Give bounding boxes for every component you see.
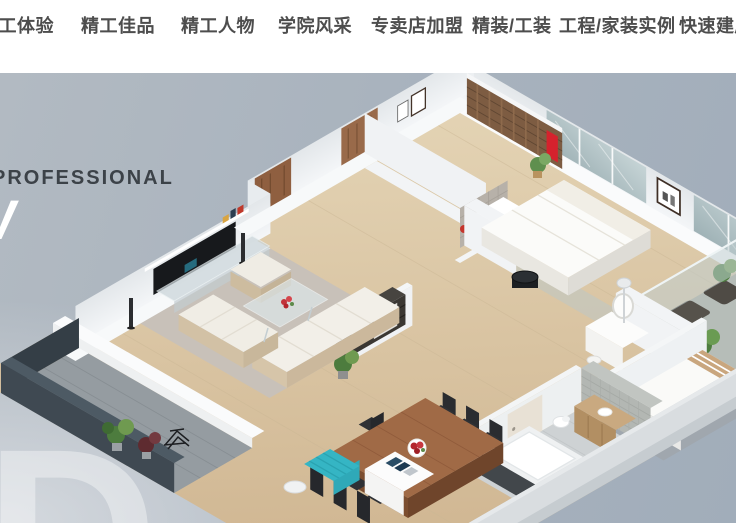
apartment-isometric-render: [0, 73, 736, 523]
nav-item-jingzhuang[interactable]: 精装/工装: [472, 12, 552, 38]
hero-banner: ID PROFESSIONAL W: [0, 73, 736, 523]
nav-item-jinggong-tiyan[interactable]: 精工体验: [0, 12, 54, 38]
fruit-bowl: [408, 439, 426, 457]
nav-item-gongcheng-anli[interactable]: 工程/家装实例: [559, 12, 676, 38]
nav-item-jinggong-renwu[interactable]: 精工人物: [181, 12, 255, 38]
nav-item-xueyuan-fengcai[interactable]: 学院风采: [278, 12, 352, 38]
hero-cutoff-letter: W: [0, 187, 15, 252]
round-side-table: [284, 481, 306, 493]
toilet: [553, 416, 570, 428]
top-navigation: 精工体验 精工佳品 精工人物 学院风采 专卖店加盟 精装/工装 工程/家装实例 …: [0, 0, 736, 73]
page: 精工体验 精工佳品 精工人物 学院风采 专卖店加盟 精装/工装 工程/家装实例 …: [0, 0, 736, 523]
black-drum-table: [512, 271, 538, 288]
nav-item-zhuanmaidian[interactable]: 专卖店加盟: [371, 12, 464, 38]
nav-item-kuaisu-jiandian[interactable]: 快速建店: [679, 12, 736, 38]
hero-kicker-text: PROFESSIONAL: [0, 167, 174, 190]
nav-item-jinggong-jiapin[interactable]: 精工佳品: [81, 12, 155, 38]
